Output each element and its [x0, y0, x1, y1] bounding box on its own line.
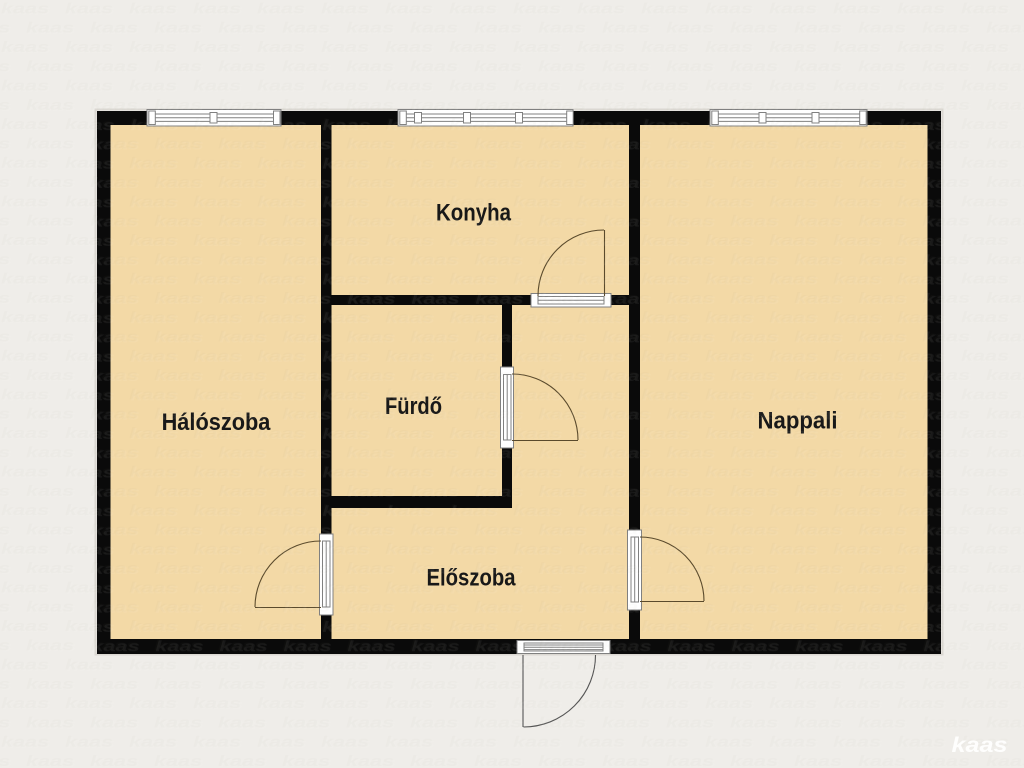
- svg-text:kaas: kaas: [952, 733, 1008, 757]
